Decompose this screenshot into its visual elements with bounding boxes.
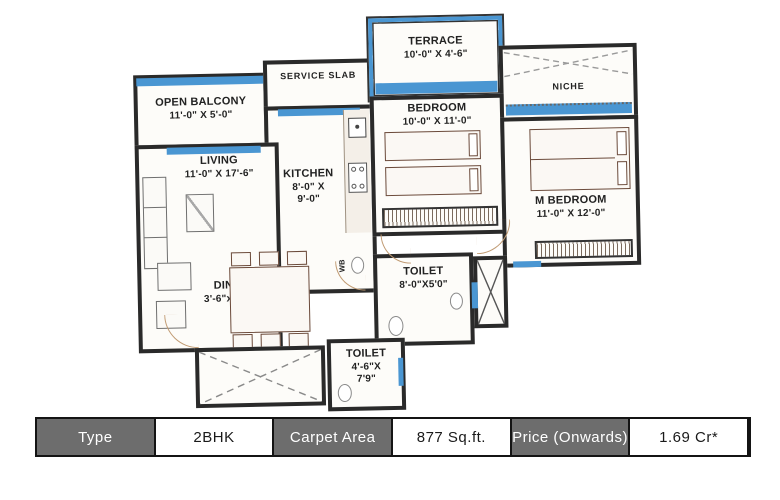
toilet2-window xyxy=(398,358,404,386)
room-open-balcony: OPEN BALCONY 11'-0" X 5'-0" xyxy=(133,73,269,150)
dining-chair xyxy=(259,251,279,265)
room-name: OPEN BALCONY xyxy=(138,95,264,111)
toilet1-label: TOILET 8'-0"X5'0" xyxy=(377,264,470,292)
pillow xyxy=(469,168,478,191)
shaft-window xyxy=(472,282,479,308)
shaft xyxy=(473,256,509,329)
info-cell-price-header: Price (Onwards) xyxy=(512,419,629,455)
terrace-label: TERRACE 10'-0" X 4'-6" xyxy=(372,34,499,63)
room-niche: NICHE xyxy=(499,43,639,122)
bed-single-1 xyxy=(384,130,481,161)
entry-door-arc xyxy=(164,314,199,349)
wash-basin-icon xyxy=(351,257,364,274)
room-dims: 9'-0" xyxy=(272,193,346,207)
niche-hatch-decoration xyxy=(504,48,633,79)
kitchen-sink xyxy=(348,118,366,138)
sink-drain xyxy=(355,125,359,129)
coffee-table xyxy=(186,194,215,233)
room-m-bedroom: M BEDROOM 11'-0" X 12'-0" xyxy=(500,115,641,268)
info-cell-carpet-header: Carpet Area xyxy=(274,419,391,455)
bed-divider xyxy=(531,157,615,160)
dining-chair xyxy=(287,251,307,265)
room-service-slab: SERVICE SLAB xyxy=(263,58,374,110)
niche-label: NICHE xyxy=(503,80,633,94)
pillow xyxy=(617,161,628,185)
kitchen-label: KITCHEN 8'-0" X 9'-0" xyxy=(271,167,346,207)
wc-icon xyxy=(338,384,352,402)
room-dims: 11'-0" X 17'-6" xyxy=(163,167,275,182)
toilet2-label: TOILET 4'-6"X 7'9" xyxy=(331,347,402,387)
open-balcony-label: OPEN BALCONY 11'-0" X 5'-0" xyxy=(138,95,265,124)
info-cell-type-header: Type xyxy=(37,419,154,455)
bedroom-label: BEDROOM 10'-0" X 11'-0" xyxy=(374,101,501,130)
floorplan-page: OPEN BALCONY 11'-0" X 5'-0" SERVICE SLAB… xyxy=(0,0,780,500)
ledge xyxy=(195,345,326,408)
stove-icon xyxy=(348,163,368,193)
shaft-cross-decoration xyxy=(477,260,504,325)
bed-single-2 xyxy=(385,165,482,196)
info-cell-carpet-value: 877 Sq.ft. xyxy=(391,419,512,455)
living-label: LIVING 11'-0" X 17'-6" xyxy=(163,153,276,182)
niche-window xyxy=(506,102,632,116)
sofa xyxy=(142,177,168,269)
room-dims: 11'-0" X 12'-0" xyxy=(506,207,636,222)
room-name: TOILET xyxy=(331,347,401,362)
m-bedroom-wardrobe xyxy=(535,239,633,259)
m-bedroom-label: M BEDROOM 11'-0" X 12'-0" xyxy=(506,193,637,222)
floor-plan: OPEN BALCONY 11'-0" X 5'-0" SERVICE SLAB… xyxy=(124,3,660,418)
info-cell-price-value: 1.69 Cr* xyxy=(628,419,749,455)
room-toilet-1: TOILET 8'-0"X5'0" xyxy=(373,252,475,346)
dining-table xyxy=(229,266,310,334)
pillow xyxy=(468,133,477,156)
room-terrace: TERRACE 10'-0" X 4'-6" xyxy=(368,16,504,101)
room-dims: 11'-0" X 5'-0" xyxy=(138,108,264,123)
m-bedroom-window xyxy=(513,261,541,268)
info-table: Type 2BHK Carpet Area 877 Sq.ft. Price (… xyxy=(35,417,751,457)
room-bedroom: BEDROOM 10'-0" X 11'-0" xyxy=(370,94,507,237)
room-toilet-2: TOILET 4'-6"X 7'9" xyxy=(327,338,406,412)
service-slab-label: SERVICE SLAB xyxy=(267,69,369,82)
info-cell-type-value: 2BHK xyxy=(154,419,275,455)
balcony-railing-window xyxy=(136,76,264,87)
wash-basin-icon xyxy=(450,293,463,310)
room-dims: 8'-0"X5'0" xyxy=(377,278,469,292)
wash-basin-label: WB xyxy=(337,259,347,273)
bed-double xyxy=(529,127,630,191)
ledge-cross-decoration xyxy=(199,350,322,405)
room-dims: 10'-0" X 11'-0" xyxy=(374,114,500,129)
pillow xyxy=(616,131,627,155)
terrace-window xyxy=(375,81,497,95)
dining-chair xyxy=(231,252,251,266)
room-dims: 10'-0" X 4'-6" xyxy=(373,47,499,62)
wc-icon xyxy=(388,316,403,336)
